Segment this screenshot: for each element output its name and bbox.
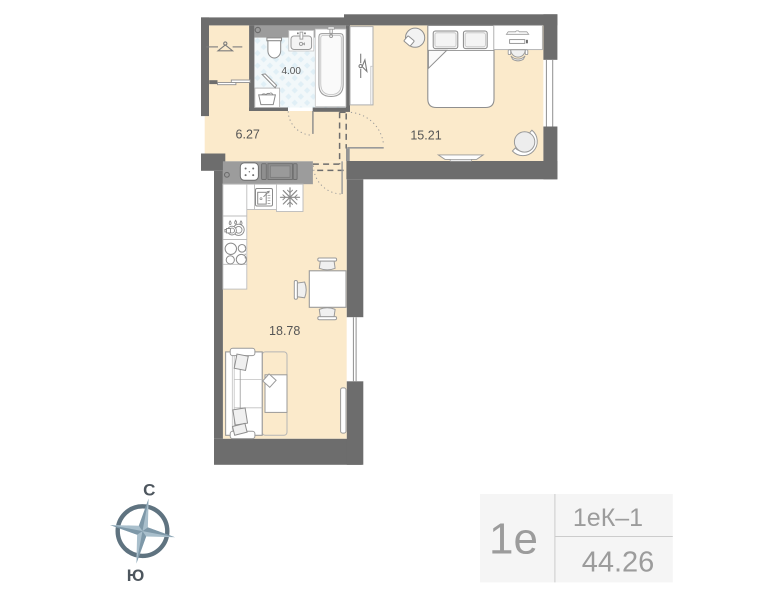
svg-text:44.26: 44.26 bbox=[582, 547, 655, 579]
svg-text:С: С bbox=[143, 481, 155, 500]
svg-text:1е: 1е bbox=[489, 515, 538, 564]
svg-text:4.00: 4.00 bbox=[281, 66, 301, 77]
svg-text:1еК–1: 1еК–1 bbox=[573, 504, 643, 532]
svg-text:18.78: 18.78 bbox=[269, 324, 300, 338]
svg-text:Ю: Ю bbox=[127, 566, 145, 585]
svg-text:6.27: 6.27 bbox=[236, 128, 260, 142]
svg-text:15.21: 15.21 bbox=[410, 129, 441, 143]
